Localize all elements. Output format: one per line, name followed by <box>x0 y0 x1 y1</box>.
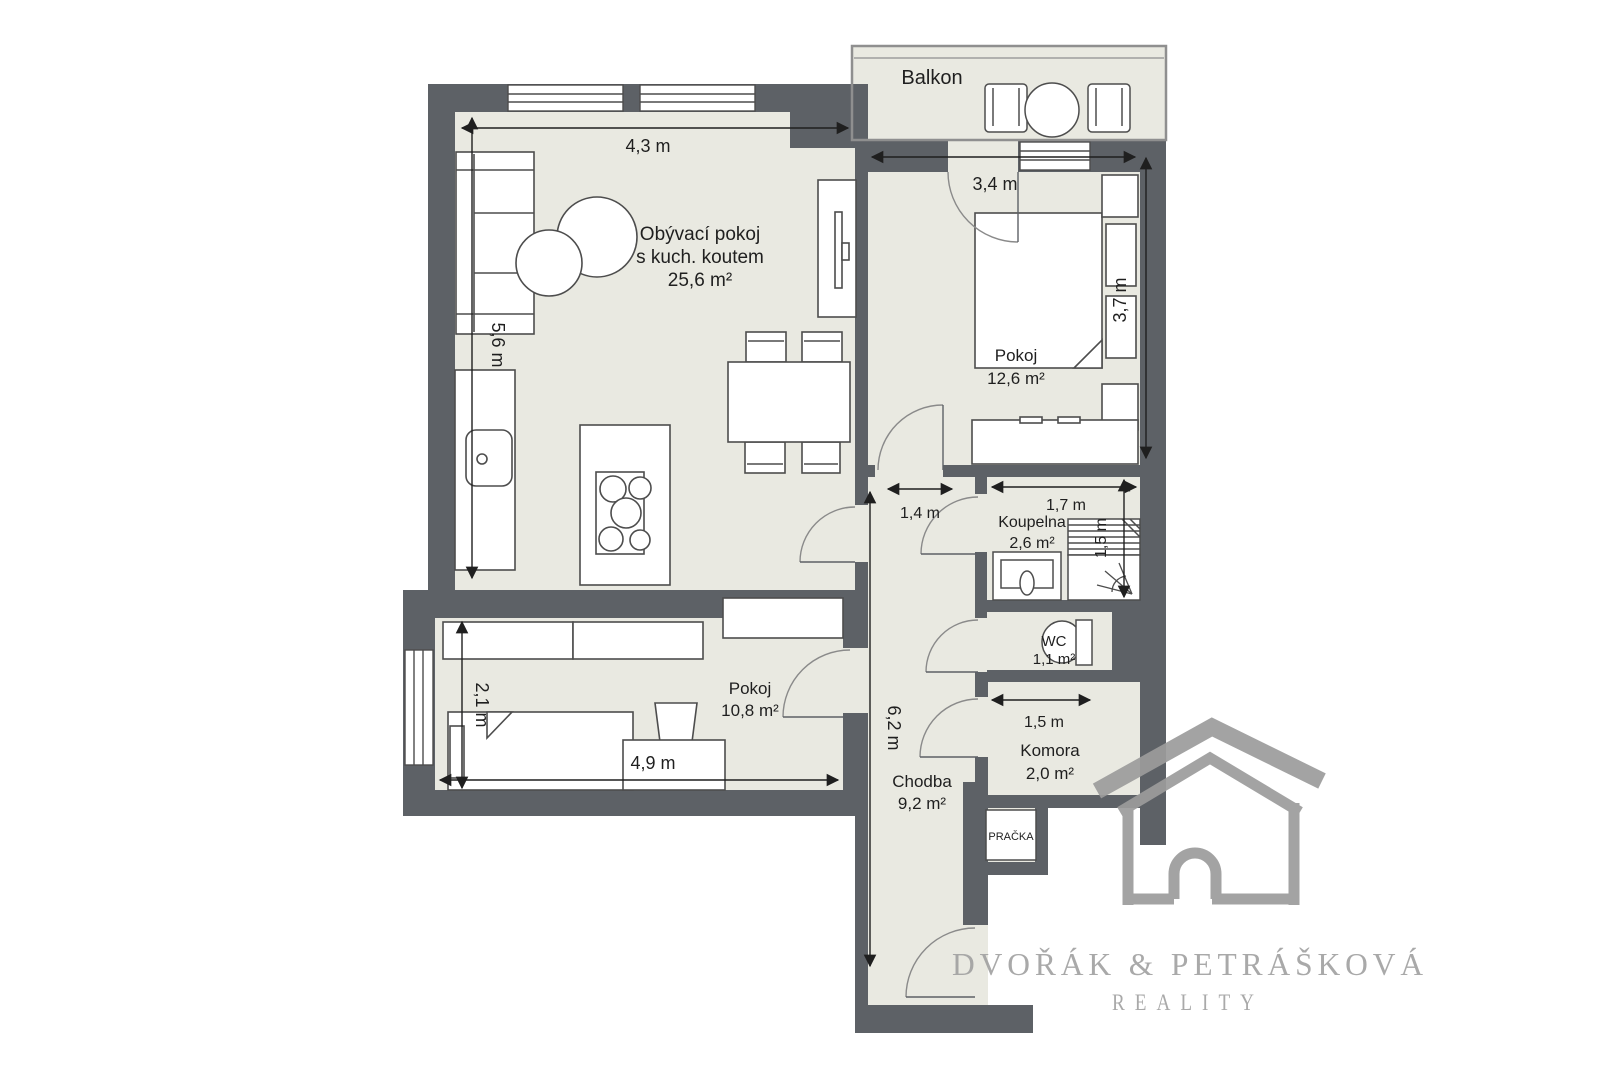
dining-chair <box>802 332 842 362</box>
dining-chair <box>745 442 785 473</box>
dining-chair <box>802 442 840 473</box>
wall-entrance-bottom <box>855 1005 1033 1033</box>
window-living-1 <box>508 85 623 111</box>
floor-plan: Balkon <box>0 0 1598 1065</box>
window-room2 <box>405 650 433 765</box>
kitchen-counter <box>455 370 515 570</box>
dresser <box>972 417 1138 464</box>
pouf-small <box>516 230 582 296</box>
dim-hall-entry: 1,4 m <box>900 505 940 522</box>
room2-label: Pokoj <box>729 679 772 698</box>
dim-bathroom-height: 1,5 m <box>1093 518 1110 558</box>
tv-cabinet <box>818 180 856 317</box>
toilet-tank <box>1076 620 1092 665</box>
double-bed <box>975 213 1102 368</box>
wall-living-left <box>428 84 455 600</box>
wall-right-exterior <box>1140 140 1166 845</box>
wall-room2-bottom <box>403 790 855 816</box>
dim-room2-width: 4,9 m <box>630 753 675 773</box>
bathroom-label: Koupelna <box>998 514 1066 531</box>
bathroom-area: 2,6 m² <box>1009 535 1055 552</box>
logo-tagline: REALITY <box>1112 990 1264 1015</box>
desk-chair <box>655 703 697 742</box>
storage-label: Komora <box>1020 741 1080 760</box>
wall-wc-bottom <box>975 670 1140 682</box>
faucet <box>477 454 487 464</box>
living-room-label-2: s kuch. koutem <box>636 247 764 268</box>
window-living-2 <box>640 85 755 111</box>
room2-area: 10,8 m² <box>721 701 779 720</box>
dim-bedroom-width: 3,4 m <box>972 174 1017 194</box>
living-room-area: 25,6 m² <box>668 270 732 291</box>
dim-living-height: 5,6 m <box>488 322 508 367</box>
washer-box: PRAČKA <box>986 810 1036 860</box>
opening-room2-door <box>843 648 868 713</box>
dim-living-width: 4,3 m <box>625 136 670 156</box>
dim-hallway-length: 6,2 m <box>884 705 904 750</box>
bedroom-unit-top <box>1102 175 1138 217</box>
balcony-chair-left <box>985 84 1027 132</box>
dim-bedroom-height: 3,7 m <box>1110 277 1130 322</box>
logo-company-name: DVOŘÁK & PETRÁŠKOVÁ <box>952 946 1428 982</box>
opening-wc-door <box>975 618 987 672</box>
opening-balcony-door <box>948 140 1018 172</box>
bedroom-label: Pokoj <box>995 346 1038 365</box>
dining-table <box>728 362 850 442</box>
hallway-label: Chodba <box>892 772 952 791</box>
window-bedroom-balcony <box>1020 142 1090 170</box>
closet-top-right <box>723 598 843 638</box>
nightstand <box>1106 224 1136 286</box>
kitchen-sink <box>466 430 512 486</box>
opening-bathroom-door <box>975 494 987 552</box>
dim-room2-height: 2,1 m <box>472 682 492 727</box>
opening-bedroom-door <box>875 465 943 477</box>
opening-living-door <box>855 505 868 562</box>
dim-bathroom-width: 1,7 m <box>1046 497 1086 514</box>
wall-wc-right-block <box>1112 600 1140 682</box>
dining-chair <box>746 332 786 362</box>
hallway-area: 9,2 m² <box>898 794 947 813</box>
floor-plan-page: Balkon <box>0 0 1598 1065</box>
living-room-label-1: Obývací pokoj <box>640 224 760 245</box>
wardrobe <box>573 622 703 659</box>
wc-label: WC <box>1042 633 1067 650</box>
bedroom-area: 12,6 m² <box>987 369 1045 388</box>
dim-storage-width: 1,5 m <box>1024 714 1064 731</box>
bathroom-sink <box>993 552 1061 600</box>
opening-storage-door <box>975 697 988 757</box>
balcony-chair-right <box>1088 84 1130 132</box>
kitchen-island <box>580 425 670 585</box>
storage-area: 2,0 m² <box>1026 764 1075 783</box>
wc-area: 1,1 m² <box>1033 651 1076 668</box>
balcony-label: Balkon <box>901 67 962 89</box>
balcony-table <box>1025 83 1079 137</box>
wall-hallway-left <box>855 140 868 1015</box>
wall-hallway-right-lower <box>963 782 988 925</box>
washer-label: PRAČKA <box>988 830 1034 843</box>
